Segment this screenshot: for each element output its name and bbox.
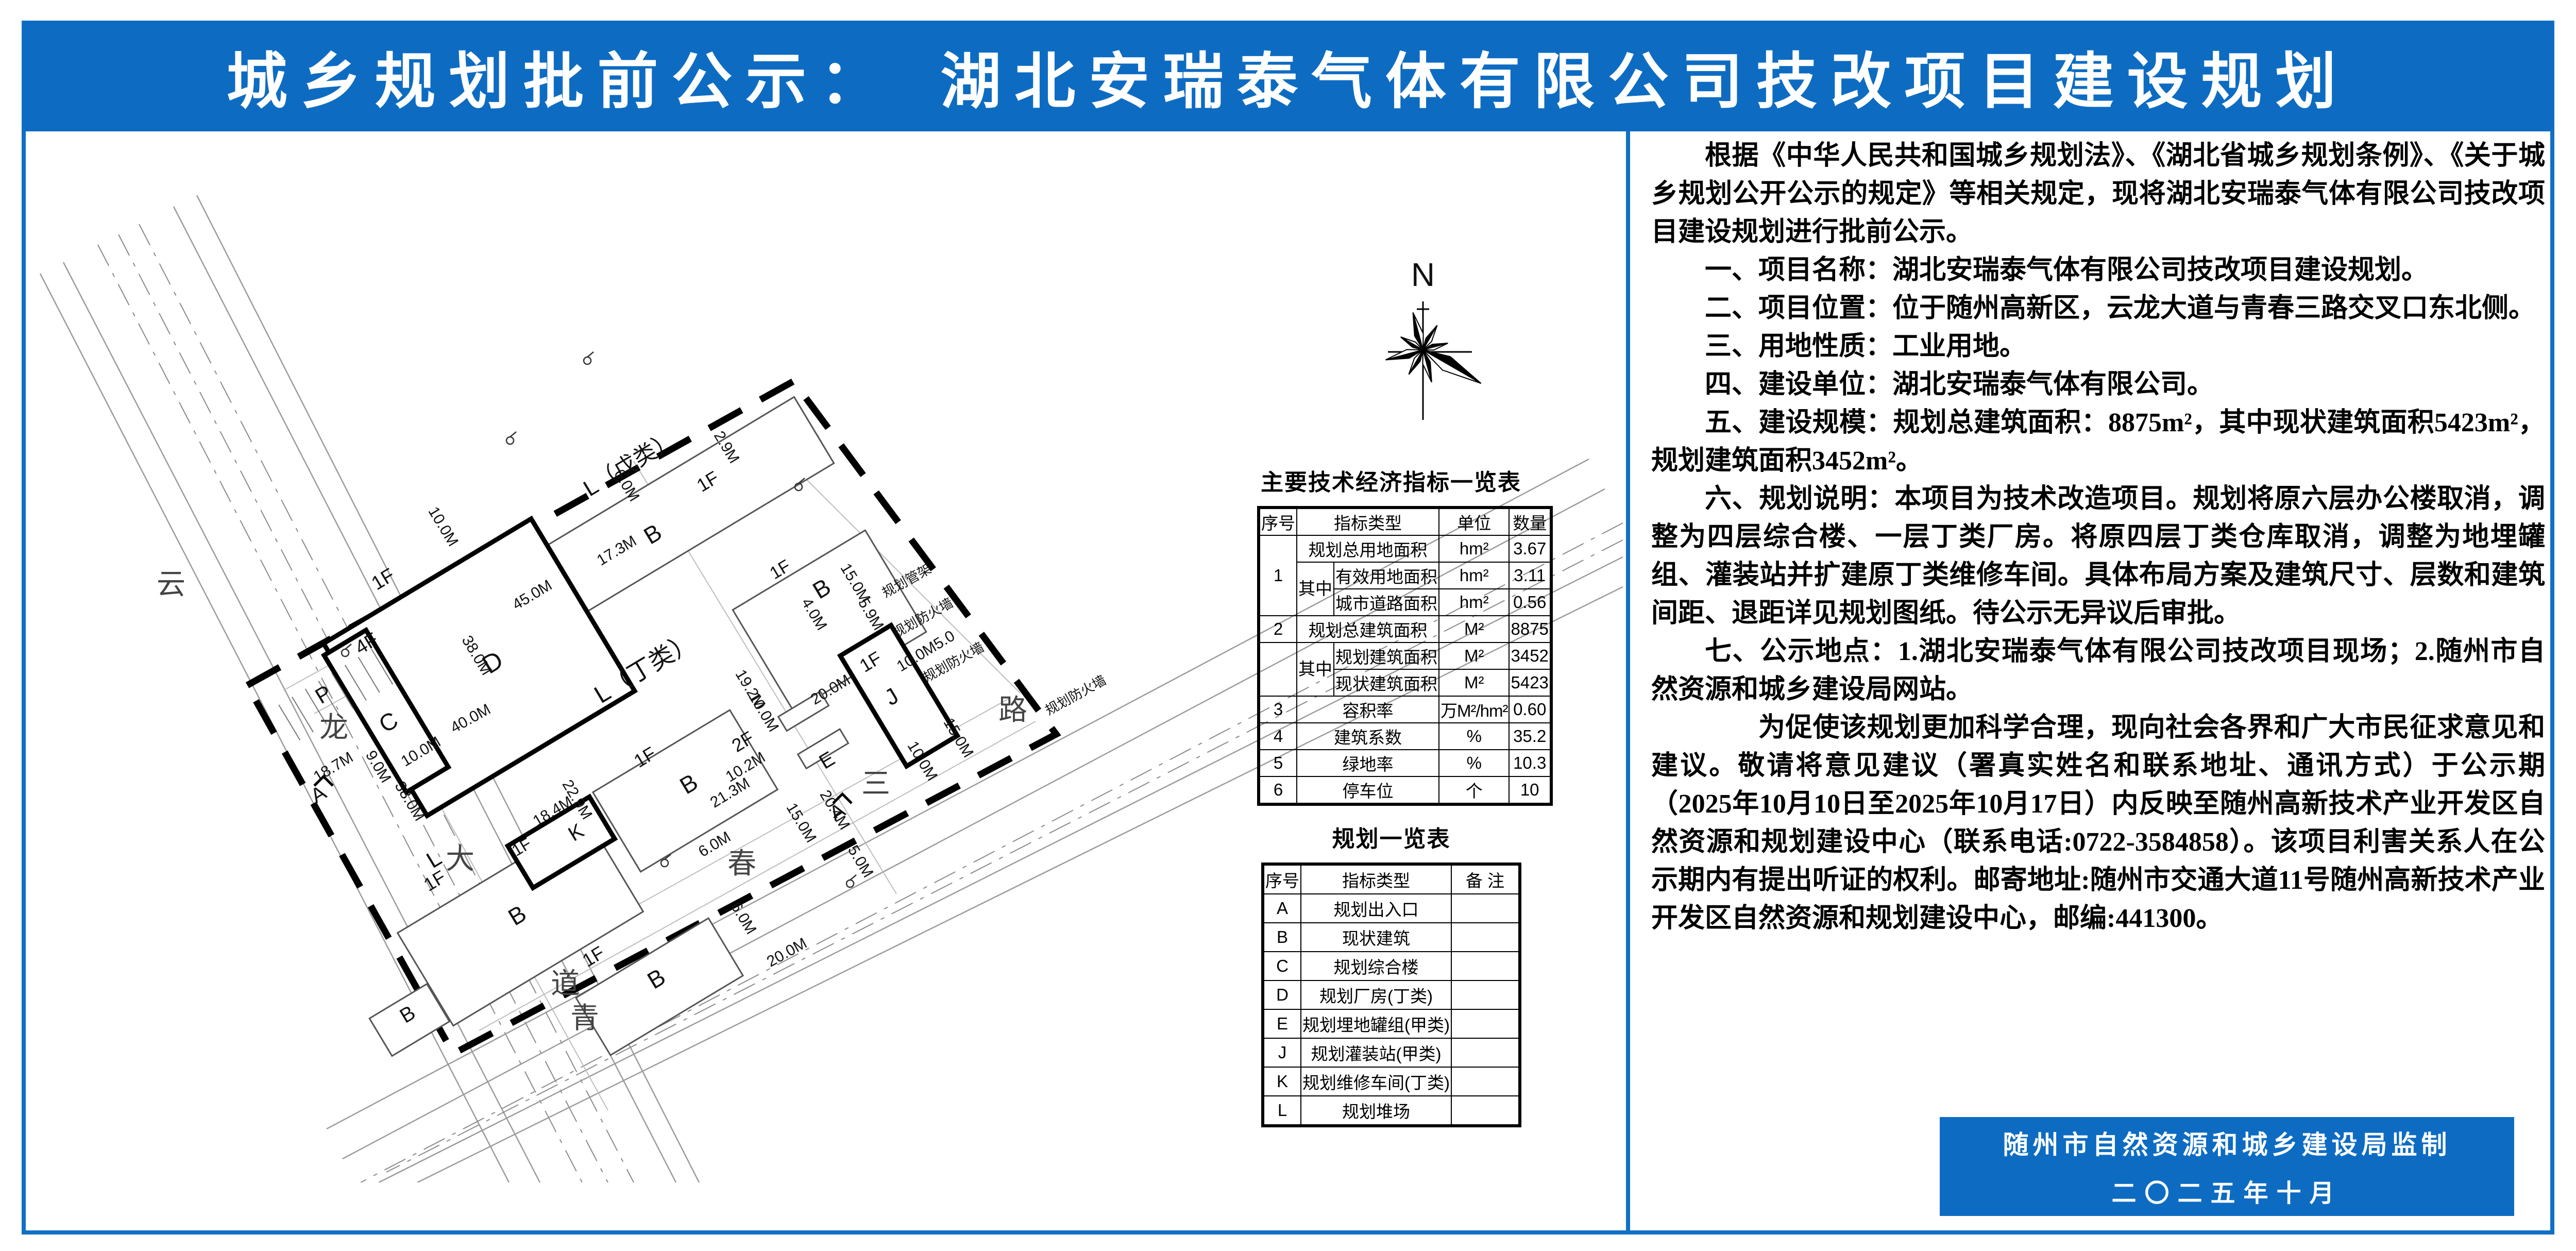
legend-table-title: 规划一览表 [1261,820,1521,853]
table-cell: B [1263,923,1301,952]
table-cell: 其中 [1297,643,1334,696]
table-cell: 规划灌装站(甲类) [1301,1038,1451,1067]
header-banner: 城乡规划批前公示： 湖北安瑞泰气体有限公司技改项目建设规划 [23,21,2553,131]
table-row: 其中规划建筑面积M²3452 [1259,643,1551,669]
table-cell: 停车位 [1297,776,1439,804]
notice-paragraph: 为促使该规划更加科学合理，现向社会各界和广大市民征求意见和建议。敬请将意见建议（… [1651,709,2545,938]
table-cell: 5423 [1509,669,1551,696]
table-cell: 备 注 [1451,864,1520,894]
table-row: B现状建筑 [1263,923,1520,952]
table-cell [1451,1096,1520,1126]
table-row: 序号指标类型备 注 [1263,864,1520,894]
road-name-label: 青 [570,1002,599,1034]
table-cell: 建筑系数 [1297,723,1439,750]
road-name-label: 路 [998,694,1027,726]
table-cell: 规划出入口 [1301,894,1451,923]
table-cell: 其中 [1297,562,1334,616]
table-cell: M² [1439,669,1509,696]
notice-paragraph: 六、规划说明：本项目为技术改造项目。规划将原六层办公楼取消，调整为四层综合楼、一… [1651,480,2545,633]
table-cell: 3 [1259,696,1297,723]
table-cell: 4 [1259,723,1297,750]
table-cell: 序号 [1259,508,1297,535]
table-row: 3容积率万M²/hm²0.60 [1259,696,1551,723]
road-name-label: 三 [861,767,890,800]
table-cell [1451,980,1520,1009]
table-cell: 规划堆场 [1301,1096,1451,1126]
table-cell [1451,923,1520,952]
table-cell [1451,894,1520,923]
indicators-table-block: 主要技术经济指标一览表 序号指标类型单位数量1规划总用地面积hm²3.67其中有… [1257,464,1525,806]
page-title: 湖北安瑞泰气体有限公司技改项目建设规划 [940,32,2349,120]
road-name-label: 大 [446,842,474,875]
table-cell: 指标类型 [1301,864,1451,894]
table-cell: 有效用地面积 [1334,562,1439,589]
table-cell: 8875 [1509,616,1551,643]
table-cell: 5 [1259,750,1297,776]
table-cell: 1 [1259,535,1297,616]
table-cell: 指标类型 [1297,508,1439,535]
table-cell [1451,952,1520,980]
notice-paragraph: 一、项目名称：湖北安瑞泰气体有限公司技改项目建设规划。 [1651,251,2545,290]
table-cell [1451,1009,1520,1038]
table-cell: 规划建筑面积 [1334,643,1439,669]
table-cell: 3.67 [1509,535,1551,562]
table-cell: E [1263,1009,1301,1038]
table-cell: 2 [1259,616,1297,643]
table-cell: 规划埋地罐组(甲类) [1301,1009,1451,1038]
table-cell: hm² [1439,589,1509,616]
table-row: 序号指标类型单位数量 [1259,508,1551,535]
table-cell: 规划综合楼 [1301,952,1451,980]
table-row: 1规划总用地面积hm²3.67 [1259,535,1551,562]
table-row: A规划出入口 [1263,894,1520,923]
building-label: L [422,845,446,873]
footer-date: 二〇二五年十月 [2111,1173,2342,1209]
table-cell: 规划维修车间(丁类) [1301,1067,1451,1096]
dimension-label: 10.0M [425,504,462,549]
dimension-label: 20.4M [817,787,853,833]
table-cell: 万M²/hm² [1439,696,1509,723]
table-cell: C [1263,952,1301,980]
table-row: D规划厂房(丁类) [1263,980,1520,1009]
table-cell: L [1263,1096,1301,1126]
table-cell: % [1439,750,1509,776]
dimension-label: 6.0M [727,899,760,937]
table-cell: J [1263,1038,1301,1067]
notice-paragraph: 三、用地性质：工业用地。 [1651,328,2545,366]
table-cell: 0.60 [1509,696,1551,723]
table-cell: 容积率 [1297,696,1439,723]
dimension-label: 5.0M [844,842,877,881]
building-label: N [1411,256,1435,293]
table-row: 5绿地率%10.3 [1259,750,1551,776]
notice-paragraph: 七、公示地点：1.湖北安瑞泰气体有限公司技改项目现场；2.随州市自然资源和城乡建… [1651,633,2545,709]
notice-paragraph: 五、建设规模：规划总建筑面积：8875m²，其中现状建筑面积5423m²，规划建… [1651,404,2545,480]
table-cell: 10.3 [1509,750,1551,776]
table-cell [1451,1067,1520,1096]
page-frame-right [2550,21,2554,1235]
road-name-label: 道 [551,967,580,1000]
footer-issuer-box: 随州市自然资源和城乡建设局监制 二〇二五年十月 [1940,1117,2514,1216]
header-prefix: 城乡规划批前公示： [227,32,894,120]
table-cell: 规划总建筑面积 [1297,616,1439,643]
annotation-label: 规划防火墙 [1043,672,1109,718]
table-cell: 3452 [1509,643,1551,669]
indicators-table: 序号指标类型单位数量1规划总用地面积hm²3.67其中有效用地面积hm²3.11… [1257,506,1553,806]
legend-table-block: 规划一览表 序号指标类型备 注A规划出入口B现状建筑C规划综合楼D规划厂房(丁类… [1261,820,1521,1127]
table-cell: 现状建筑面积 [1334,669,1439,696]
table-row: 2规划总建筑面积M²8875 [1259,616,1551,643]
table-cell: 6 [1259,776,1297,804]
dimension-label: 18.7M [311,749,356,785]
notice-paragraph: 二、项目位置：位于随州高新区，云龙大道与青春三路交叉口东北侧。 [1651,290,2545,328]
table-cell: % [1439,723,1509,750]
notice-text: 根据《中华人民共和国城乡规划法》、《湖北省城乡规划条例》、《关于城乡规划公开公示… [1651,137,2545,938]
table-cell: K [1263,1067,1301,1096]
table-cell: 序号 [1263,864,1301,894]
table-cell: 城市道路面积 [1334,589,1439,616]
table-cell [1259,643,1297,696]
table-cell: 10 [1509,776,1551,804]
table-cell [1451,1038,1520,1067]
table-cell: M² [1439,643,1509,669]
table-row: C规划综合楼 [1263,952,1520,980]
table-cell: D [1263,980,1301,1009]
table-cell: 现状建筑 [1301,923,1451,952]
table-cell: 个 [1439,776,1509,804]
planning-notice-page: 城乡规划批前公示： 湖北安瑞泰气体有限公司技改项目建设规划 [0,0,2576,1251]
road-name-label: 春 [727,847,756,880]
notice-paragraph: 四、建设单位：湖北安瑞泰气体有限公司。 [1651,366,2545,404]
page-frame-left [22,21,26,1235]
north-compass-icon [1386,301,1481,420]
notice-paragraph: 根据《中华人民共和国城乡规划法》、《湖北省城乡规划条例》、《关于城乡规划公开公示… [1651,137,2545,251]
table-row: K规划维修车间(丁类) [1263,1067,1520,1096]
footer-issuer: 随州市自然资源和城乡建设局监制 [2003,1124,2451,1161]
road-name-label: 云 [157,568,185,600]
table-cell: 单位 [1439,508,1509,535]
table-row: 6停车位个10 [1259,776,1551,804]
table-cell: 0.56 [1509,589,1551,616]
table-cell: 规划厂房(丁类) [1301,980,1451,1009]
dimension-label: 20.0M [764,935,810,970]
indicators-table-title: 主要技术经济指标一览表 [1257,464,1525,497]
building-label: 1F [368,564,399,595]
legend-table: 序号指标类型备 注A规划出入口B现状建筑C规划综合楼D规划厂房(丁类)E规划埋地… [1261,863,1521,1127]
table-row: J规划灌装站(甲类) [1263,1038,1520,1067]
table-cell: 规划总用地面积 [1297,535,1439,562]
table-cell: 绿地率 [1297,750,1439,776]
table-cell: A [1263,894,1301,923]
table-row: 其中有效用地面积hm²3.11 [1259,562,1551,589]
table-row: E规划埋地罐组(甲类) [1263,1009,1520,1038]
table-cell: hm² [1439,535,1509,562]
table-cell: M² [1439,616,1509,643]
table-row: L规划堆场 [1263,1096,1520,1126]
column-divider [1626,131,1630,1230]
table-cell: 数量 [1509,508,1551,535]
table-cell: 3.11 [1509,562,1551,589]
table-cell: 35.2 [1509,723,1551,750]
road-name-label: 龙 [319,711,348,743]
page-frame-bottom [22,1230,2554,1235]
table-cell: hm² [1439,562,1509,589]
table-row: 4建筑系数%35.2 [1259,723,1551,750]
